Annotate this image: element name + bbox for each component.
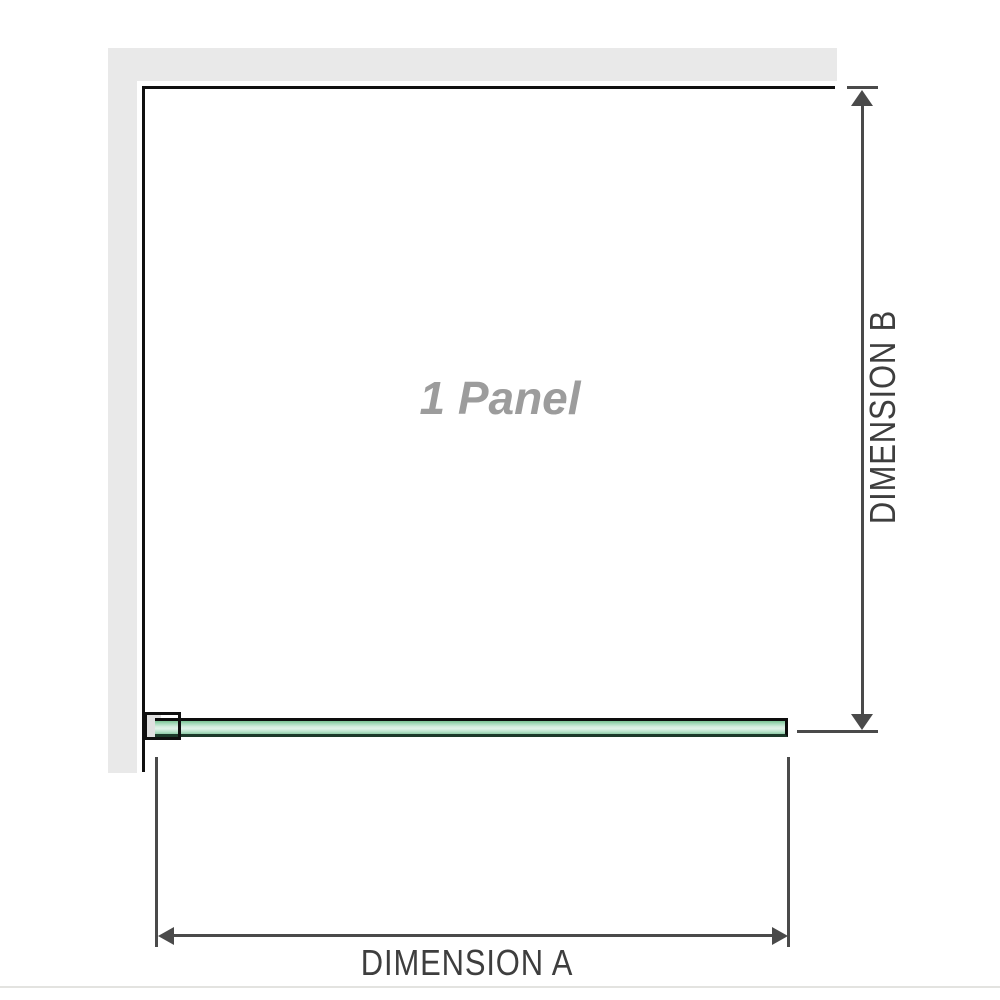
dimension-b-label: DIMENSION B: [862, 310, 904, 524]
bottom-divider-line: [0, 986, 1000, 988]
dimension-b-tick-top: [847, 86, 878, 89]
frame-top-line: [142, 86, 835, 89]
dimension-a-arrowhead-right-icon: [772, 927, 788, 945]
dimension-a-label: DIMENSION A: [361, 942, 573, 984]
wall-left: [108, 48, 137, 773]
dimension-b-arrowhead-up-icon: [851, 90, 873, 106]
diagram-canvas: 1 Panel DIMENSION B DIMENSION A: [0, 0, 1000, 1000]
frame-left-line: [142, 86, 145, 772]
wall-bracket-clamp: [144, 712, 181, 740]
dimension-b-tick-bottom: [797, 730, 878, 733]
dimension-a-line: [172, 934, 774, 937]
dimension-a-extension-right: [787, 757, 790, 947]
dimension-a-extension-left: [155, 757, 158, 947]
dimension-a-arrowhead-left-icon: [158, 927, 174, 945]
dimension-b-arrowhead-down-icon: [851, 714, 873, 730]
wall-top: [108, 48, 837, 81]
glass-panel: [155, 718, 788, 737]
panel-count-label: 1 Panel: [419, 371, 580, 425]
